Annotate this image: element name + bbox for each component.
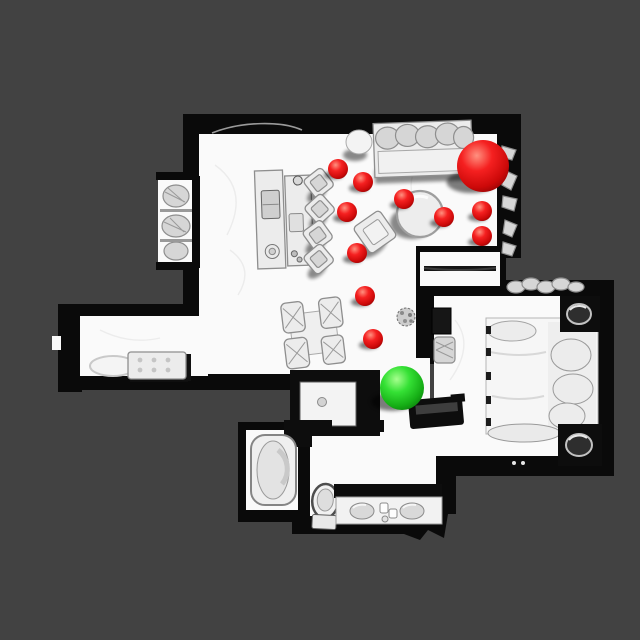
kitchen-island <box>284 370 380 447</box>
bed <box>486 318 598 442</box>
3d-scan-topdown-viewport[interactable] <box>0 0 640 640</box>
wall-mirror <box>432 308 451 334</box>
render-canvas[interactable] <box>0 0 640 640</box>
notepad <box>289 213 304 231</box>
hallway-bench <box>128 352 191 382</box>
potted-plant <box>397 308 415 326</box>
vanity-double-sink <box>334 484 442 524</box>
nightstand-bottom <box>558 424 602 466</box>
bathtub <box>251 435 296 505</box>
nightstand-top <box>560 296 600 332</box>
sideboard <box>424 266 496 271</box>
laundry-basket <box>434 337 455 363</box>
